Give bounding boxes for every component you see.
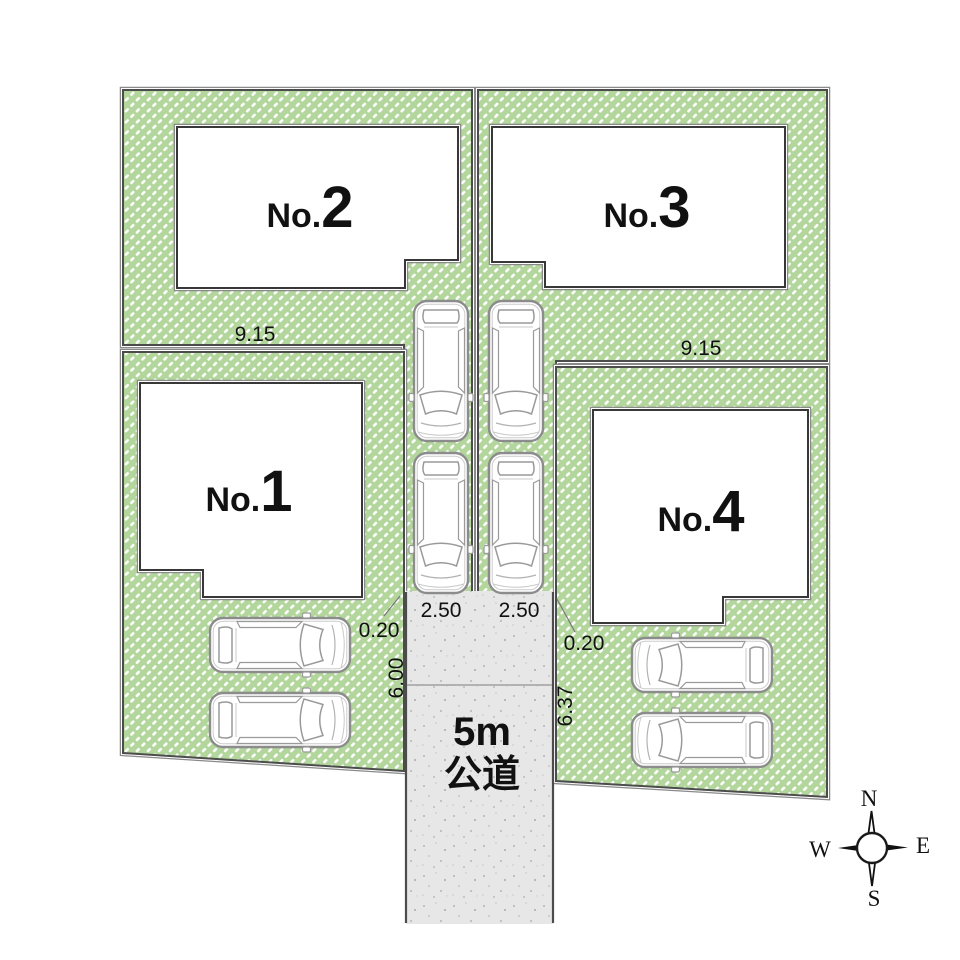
- car-topview: [484, 453, 548, 593]
- measure-offset-left: 0.20: [359, 619, 400, 642]
- measure-road-depth-left: 6.00: [385, 658, 408, 699]
- compass-west-label: W: [809, 837, 831, 862]
- car-topview: [632, 633, 772, 697]
- measure-lot3-frontage: 9.15: [681, 337, 722, 360]
- measure-parking-right: 2.50: [499, 599, 540, 622]
- car-topview: [210, 613, 350, 677]
- car-topview: [484, 301, 548, 441]
- compass-circle: [857, 833, 887, 863]
- road-label-type: 公道: [444, 754, 520, 796]
- road-label-width: 5m: [453, 710, 511, 754]
- measure-offset-right: 0.20: [564, 632, 605, 655]
- site-plan-svg: No.2 No.3 No.1 No.4 9.15 9.15 2.50 2.50 …: [0, 0, 960, 960]
- car-topview: [632, 708, 772, 772]
- site-plan-page: No.2 No.3 No.1 No.4 9.15 9.15 2.50 2.50 …: [0, 0, 960, 960]
- car-topview: [409, 301, 473, 441]
- measure-parking-left: 2.50: [421, 599, 462, 622]
- compass-east-label: E: [916, 833, 930, 858]
- measure-lot2-frontage: 9.15: [235, 323, 276, 346]
- car-topview: [210, 688, 350, 752]
- compass-south-label: S: [868, 886, 881, 911]
- compass-north-label: N: [861, 786, 878, 811]
- measure-road-depth-right: 6.37: [554, 686, 577, 727]
- compass-rose: N W E S: [809, 786, 930, 911]
- car-topview: [409, 453, 473, 593]
